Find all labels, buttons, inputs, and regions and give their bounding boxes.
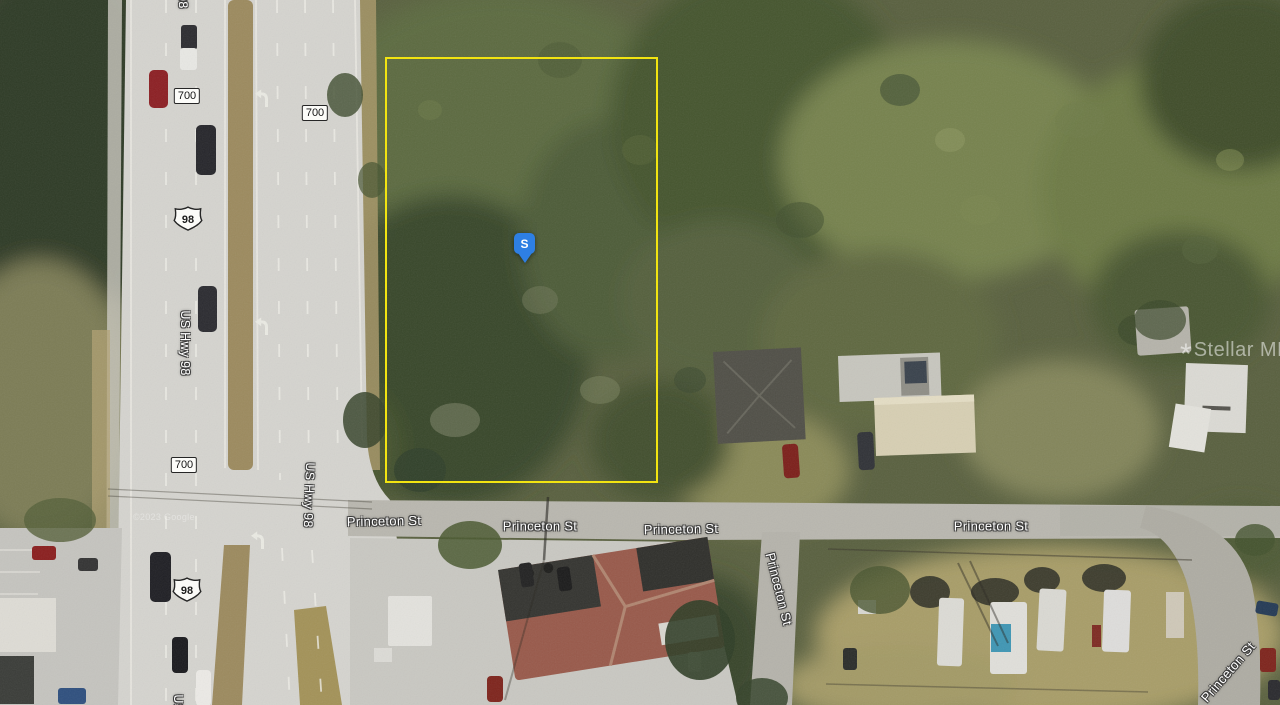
route-shield-us-98-label: 98 — [181, 585, 193, 597]
us-hwy-98-label: US Hwy 98 — [171, 694, 185, 705]
route-shield-700: 700 — [302, 105, 328, 121]
route-shield-us-98-label: 98 — [182, 214, 194, 226]
princeton-st-label: Princeton St — [954, 519, 1028, 534]
princeton-st-label: Princeton St — [347, 513, 422, 529]
us-hwy-98-label: US Hwy 98 — [178, 310, 192, 375]
stellar-mls-watermark-text: Stellar MLS — [1194, 339, 1280, 362]
route-shield-us-98: 98 — [173, 206, 203, 233]
stellar-mls-watermark: * Stellar MLS — [1180, 339, 1280, 362]
route-shield-us-98: 98 — [172, 577, 202, 604]
princeton-st-label: Princeton St — [644, 521, 719, 537]
us-hwy-98-label: US Hwy 98 — [174, 0, 190, 9]
princeton-st-label: Princeton St — [503, 519, 577, 534]
route-shield-700: 700 — [174, 88, 200, 104]
property-marker[interactable]: S — [514, 233, 535, 254]
parcel-boundary — [385, 57, 658, 483]
stellar-mls-logo-icon: * — [1180, 346, 1192, 364]
map-attribution: ©2023 Google — [133, 512, 195, 522]
route-shield-700: 700 — [171, 457, 197, 473]
satellite-map-canvas[interactable]: S 700 700 700 98 98 US Hwy 98 US Hwy 98 … — [0, 0, 1280, 705]
us-hwy-98-label: US Hwy 98 — [301, 462, 317, 528]
property-marker-label: S — [520, 237, 528, 251]
